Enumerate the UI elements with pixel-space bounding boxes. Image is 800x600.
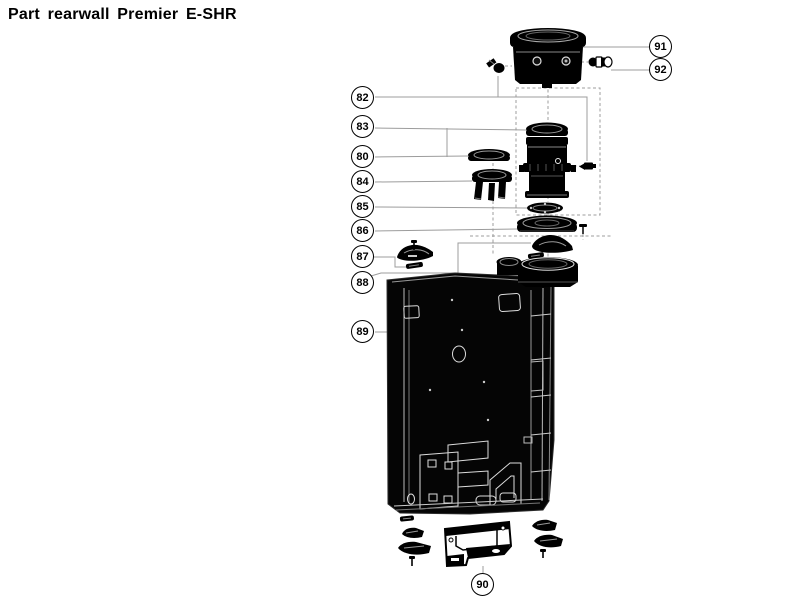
rear-wall-panel	[387, 273, 554, 514]
screw-82-right	[579, 163, 596, 171]
mixer-body	[519, 137, 576, 198]
callout-88[interactable]: 88	[351, 271, 374, 294]
gasket-85	[527, 203, 563, 214]
mixer-assembly	[519, 123, 596, 214]
callout-84[interactable]: 84	[351, 170, 374, 193]
mixer-top-disc-83	[526, 123, 568, 137]
mounting-plate-90	[445, 522, 511, 566]
clamp-bracket-right	[528, 235, 573, 259]
callout-91[interactable]: 91	[649, 35, 672, 58]
fan-housing	[510, 28, 586, 88]
callout-90[interactable]: 90	[471, 573, 494, 596]
screw-small-right	[579, 224, 587, 234]
inlet-disc-80	[468, 149, 510, 161]
parts-diagram-page: Part rearwall Premier E-SHR	[0, 0, 800, 600]
page-title: Part rearwall Premier E-SHR	[8, 6, 237, 24]
callout-85[interactable]: 85	[351, 195, 374, 218]
bracket-pair-bottom-left	[398, 528, 431, 566]
callout-80[interactable]: 80	[351, 145, 374, 168]
bracket-pair-bottom-right	[532, 520, 563, 558]
callout-87[interactable]: 87	[351, 245, 374, 268]
callout-82[interactable]: 82	[351, 86, 374, 109]
callout-86[interactable]: 86	[351, 219, 374, 242]
screw-82-left	[486, 58, 504, 73]
exploded-diagram	[0, 0, 800, 600]
probe-92	[589, 57, 613, 67]
clamp-bracket-left	[397, 240, 433, 269]
flue-disc-86	[517, 216, 577, 233]
foot-clip-left	[400, 515, 414, 521]
callout-89[interactable]: 89	[351, 320, 374, 343]
venturi-84	[472, 169, 512, 201]
callout-83[interactable]: 83	[351, 115, 374, 138]
callout-92[interactable]: 92	[649, 58, 672, 81]
flue-collar	[518, 257, 578, 287]
